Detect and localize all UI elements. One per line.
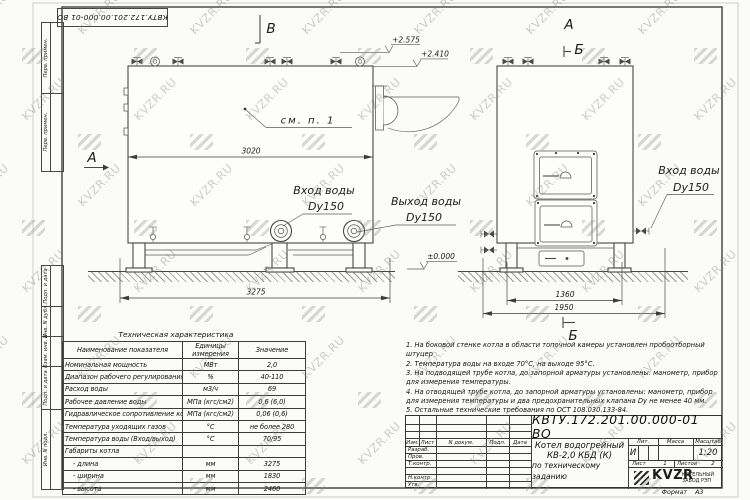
- table-row: Габариты котла: [63, 445, 306, 457]
- svg-text:Выход воды: Выход воды: [391, 195, 461, 208]
- kvzr-logo-icon: [634, 471, 649, 485]
- valve-icon: [173, 58, 184, 67]
- tb-header-podp: Подп.: [486, 439, 509, 446]
- title-block: КВТУ.172.201.00.000-01 ВО Изм. Лист N до…: [405, 415, 722, 488]
- table-header-row: Наименование показателя Единицы измерени…: [63, 342, 306, 359]
- doc-number-stamp-text: КВТУ.172.201.00.000-01 ВО: [57, 13, 168, 22]
- product-title-line1: Котел водогрейный: [535, 441, 624, 451]
- tech-characteristics-table: Наименование показателя Единицы измерени…: [62, 341, 306, 495]
- tb-sheet-label: Лист: [632, 461, 658, 468]
- margin-label: Подп. и дата: [43, 370, 49, 405]
- param-name: Гидравлическое сопротивление котла: [63, 408, 183, 420]
- company-name-line2: ЗАВОД РЭП: [682, 478, 714, 484]
- table-row: - высотамм2460: [63, 482, 306, 494]
- svg-text:±0.000: ±0.000: [427, 252, 455, 261]
- side-valve-icon: [481, 231, 497, 238]
- param-value: 0,06 (0,6): [239, 408, 306, 420]
- dim-1950-label: 1950: [554, 303, 573, 312]
- param-units: МПа (кгс/см2): [183, 396, 239, 408]
- table-row: Диапазон рабочего регулирования%40-110: [63, 371, 306, 383]
- col-header-name: Наименование показателя: [63, 342, 183, 359]
- svg-text:Вход воды: Вход воды: [293, 184, 355, 197]
- base-frame: [500, 243, 631, 272]
- param-value: 40-110: [239, 371, 306, 383]
- tb-row-razrab: Разраб.: [408, 446, 436, 453]
- margin-label: Подп. и дата: [43, 268, 49, 303]
- tb-row-utv: Утв.: [408, 481, 436, 488]
- company-name: КОТЕЛЬНЫЙ ЗАВОД РЭП: [682, 472, 714, 484]
- svg-text:+2.410: +2.410: [421, 50, 449, 59]
- param-value: 1830: [239, 470, 306, 482]
- dim-1360-label: 1360: [555, 290, 574, 299]
- side-valve-icon: [481, 247, 497, 254]
- elevation-2410: +2.410: [373, 50, 449, 67]
- svg-text:Вход воды: Вход воды: [658, 164, 720, 177]
- svg-text:Dy150: Dy150: [673, 181, 709, 194]
- lower-furnace-door: [535, 200, 597, 246]
- tb-row-tkontr: Т.контр.: [408, 460, 436, 467]
- tech-table-title: Техническая характеристика: [62, 330, 290, 339]
- view-mark-a-right: А: [563, 17, 573, 33]
- valve-icon: [620, 58, 631, 67]
- format-value: А3: [695, 489, 703, 496]
- param-value: 2460: [239, 482, 306, 494]
- param-value: [239, 445, 306, 457]
- view-mark-a-left: А: [84, 150, 109, 171]
- valve-icon: [331, 58, 342, 67]
- param-units: м3/ч: [183, 383, 239, 395]
- param-units: %: [183, 371, 239, 383]
- tb-sheets-value: 2: [705, 461, 721, 468]
- margin-box-top: Перв. примен. Перв. примен.: [41, 22, 64, 172]
- tb-row-nkontr: Н.контр.: [408, 474, 436, 481]
- valve-icon: [503, 58, 514, 67]
- table-row: Рабочее давление водыМПа (кгс/см2)0,6 (6…: [63, 396, 306, 408]
- gas-outlet-elbow: [372, 86, 459, 132]
- param-units: мм: [183, 482, 239, 494]
- param-units: мм: [183, 470, 239, 482]
- param-units: [183, 445, 239, 457]
- valve-icon: [132, 58, 143, 67]
- param-value: 3275: [239, 458, 306, 470]
- param-units: МВт: [183, 359, 239, 371]
- inlet-callout-right: Вход воды Dy150: [651, 164, 720, 228]
- param-name: - длина: [63, 458, 183, 470]
- valve-icon: [523, 58, 534, 67]
- dim-3020-label: 3020: [241, 147, 260, 156]
- margin-label: Перв. примен.: [43, 39, 49, 78]
- section-mark-b-bottom: Б: [563, 317, 578, 344]
- param-name: Температура уходящих газов: [63, 420, 183, 432]
- table-row: Температура уходящих газов°Сне более 280: [63, 420, 306, 432]
- drawing-sheet: 3020 3275: [0, 0, 750, 500]
- param-name: - ширина: [63, 470, 183, 482]
- tb-lit-value: И: [628, 446, 638, 459]
- tb-lit-label: Лит.: [628, 439, 658, 446]
- param-name: Габариты котла: [63, 445, 183, 457]
- param-units: °С: [183, 420, 239, 432]
- support-skid: [126, 243, 372, 272]
- margin-label: Инв. N подл.: [43, 432, 49, 466]
- tb-scale-label: Масштаб: [693, 439, 723, 446]
- param-units: МПа (кгс/см2): [183, 408, 239, 420]
- table-row: Номинальная мощностьМВт2,0: [63, 359, 306, 371]
- upper-furnace-door: [534, 151, 597, 199]
- tb-mass-label: Масса: [658, 439, 693, 446]
- param-name: Номинальная мощность: [63, 359, 183, 371]
- product-title-line2: КВ-2,0 КБД (К): [547, 451, 612, 461]
- col-header-value: Значение: [239, 342, 306, 359]
- section-mark-b-top: Б: [564, 42, 584, 58]
- top-port-icon: [151, 57, 160, 66]
- param-value: 70/95: [239, 433, 306, 445]
- margin-label: Взам. инв. N: [43, 334, 49, 368]
- boiler-side-view: 3020 3275: [84, 15, 461, 303]
- water-inlet-flange: [271, 221, 292, 242]
- valve-icon: [599, 58, 610, 67]
- valve-icon: [265, 58, 276, 67]
- col-header-units: Единицы измерения: [183, 342, 239, 359]
- note-item: 2. Температура воды на входе 70°С, на вы…: [406, 360, 720, 369]
- technical-notes: 1. На боковой стенке котла в области топ…: [406, 341, 720, 416]
- format-label: Формат: [662, 489, 688, 496]
- note-item: 3. На подводящей трубе котла, до запорно…: [406, 369, 720, 387]
- product-title: Котел водогрейный КВ-2,0 КБД (К) по техн…: [532, 441, 627, 487]
- tb-row-prov: Пров.: [408, 453, 436, 460]
- param-value: не более 280: [239, 420, 306, 432]
- param-name: Температура воды (Вход/выход): [63, 433, 183, 445]
- margin-label: Перв. примен.: [43, 113, 49, 152]
- tb-sheet-value: 1: [658, 461, 672, 468]
- param-name: - высота: [63, 482, 183, 494]
- note-item: 1. На боковой стенке котла в области топ…: [406, 341, 720, 359]
- tb-header-data: Дата: [509, 439, 531, 446]
- svg-text:В: В: [266, 21, 275, 37]
- view-mark-v: В: [255, 15, 276, 43]
- valve-icon: [282, 58, 293, 67]
- product-title-line3: по техническому заданию: [532, 461, 627, 482]
- svg-text:А: А: [86, 150, 96, 166]
- param-name: Диапазон рабочего регулирования: [63, 371, 183, 383]
- param-name: Расход воды: [63, 383, 183, 395]
- table-row: - длинамм3275: [63, 458, 306, 470]
- table-row: - ширинамм1830: [63, 470, 306, 482]
- param-value: 0,6 (6,0): [239, 396, 306, 408]
- svg-text:Б: Б: [574, 42, 583, 58]
- dim-3275-label: 3275: [246, 288, 265, 297]
- tb-header-ndocum: N докум.: [436, 439, 486, 446]
- param-value: 2,0: [239, 359, 306, 371]
- boiler-front-view: 1360 1950 Вход воды Dy150 ±0.000 А Б: [407, 17, 720, 344]
- elevation-2575: +2.575: [340, 36, 420, 53]
- param-units: °С: [183, 433, 239, 445]
- tb-header-izm: Изм.: [406, 439, 419, 446]
- svg-text:см. п. 1: см. п. 1: [281, 116, 336, 127]
- param-value: 69: [239, 383, 306, 395]
- table-row: Расход водым3/ч69: [63, 383, 306, 395]
- svg-text:Dy150: Dy150: [308, 200, 344, 213]
- format-note: Формат А3: [640, 489, 725, 496]
- doc-number-stamp: КВТУ.172.201.00.000-01 ВО: [57, 8, 168, 27]
- svg-text:+2.575: +2.575: [392, 36, 420, 45]
- title-block-doc-number: КВТУ.172.201.00.000-01 ВО: [532, 417, 722, 436]
- table-row: Температура воды (Вход/выход)°С70/95: [63, 433, 306, 445]
- param-name: Рабочее давление воды: [63, 396, 183, 408]
- side-valve-icon: [633, 228, 649, 235]
- note-item: 4. На отводящей трубе котла, до запорной…: [406, 388, 720, 406]
- table-row: Гидравлическое сопротивление котлаМПа (к…: [63, 408, 306, 420]
- top-port-icon: [356, 57, 365, 66]
- tb-scale-value: 1:20: [693, 446, 723, 459]
- param-units: мм: [183, 458, 239, 470]
- margin-box-bottom: Подп. и дата Инв. N дубл. Взам. инв. N П…: [41, 265, 64, 490]
- elevation-zero: ±0.000: [407, 252, 457, 269]
- svg-text:Dy150: Dy150: [406, 211, 442, 224]
- tb-header-list: Лист: [419, 439, 436, 446]
- tb-sheets-label: Листов: [677, 461, 705, 468]
